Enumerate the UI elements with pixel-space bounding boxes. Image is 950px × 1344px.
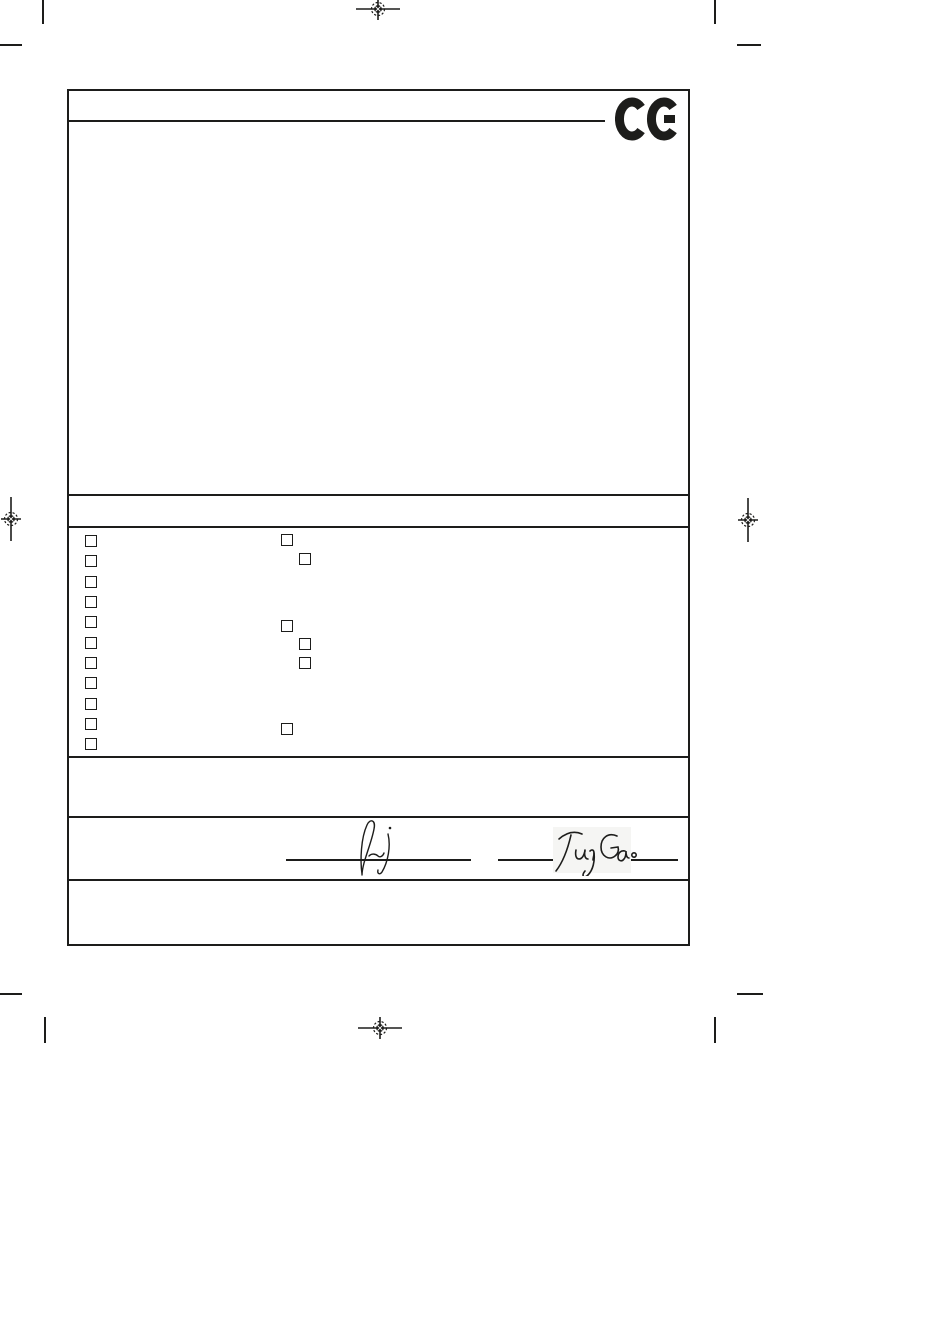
registration-mark-top [346,0,410,41]
signature-right [549,826,641,876]
crop-mark [42,0,44,24]
checkbox[interactable] [281,534,293,546]
registration-mark-left [0,487,43,551]
signature-left [341,818,405,876]
checkbox[interactable] [299,657,311,669]
checkbox[interactable] [281,620,293,632]
crop-mark [714,1017,716,1043]
checkbox-column-right [69,91,688,944]
crop-mark [737,44,761,46]
crop-mark [44,1017,46,1043]
crop-mark [0,44,22,46]
checkbox[interactable] [281,723,293,735]
checkbox[interactable] [299,638,311,650]
checkbox[interactable] [299,553,311,565]
crop-mark [737,993,763,995]
registration-mark-bottom [348,996,412,1060]
scanned-document-page [0,0,950,1344]
crop-mark [0,993,22,995]
declaration-form-box [67,89,690,946]
crop-mark [714,0,716,24]
registration-mark-right [716,488,780,552]
